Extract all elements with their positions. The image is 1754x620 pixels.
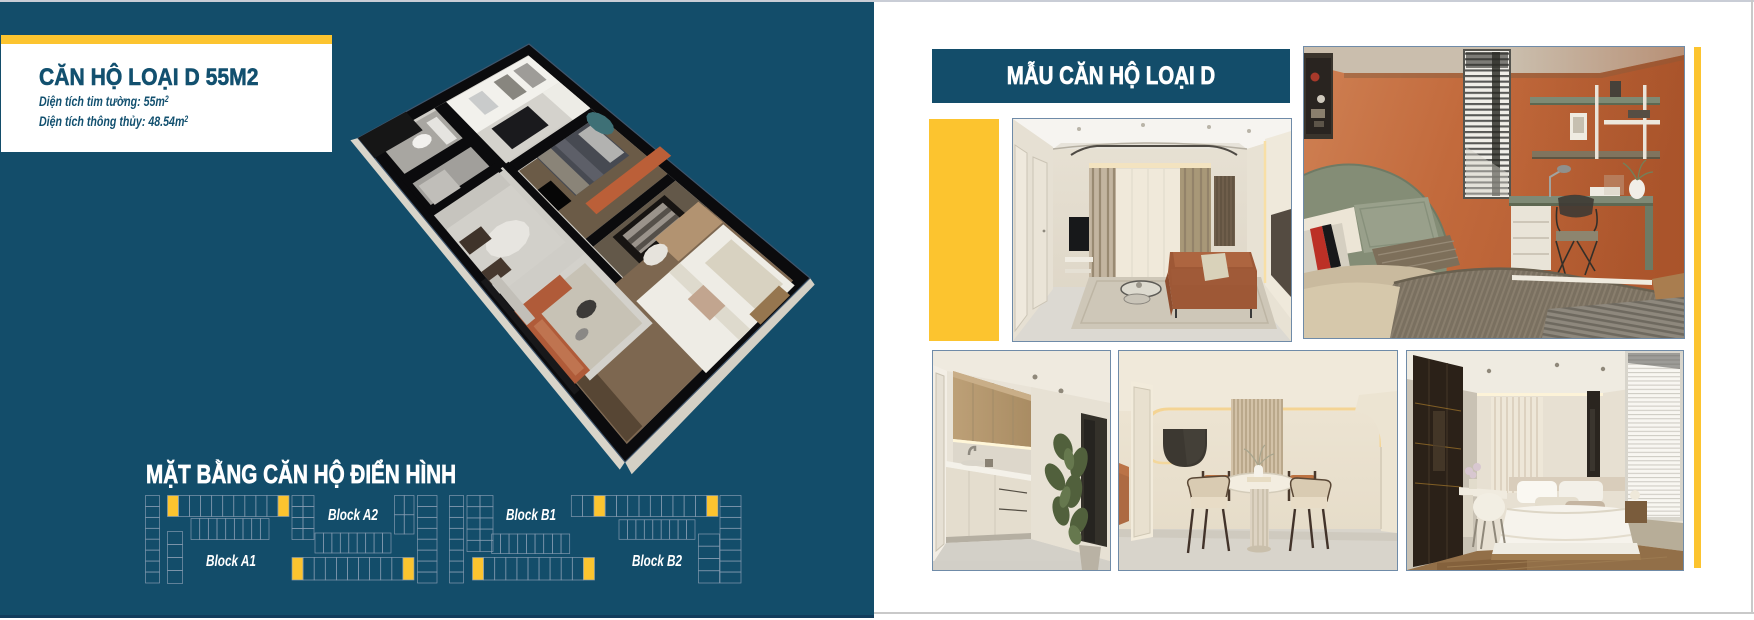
svg-text:Block A1: Block A1: [206, 553, 256, 570]
svg-text:Block B2: Block B2: [632, 553, 682, 570]
svg-text:Block A2: Block A2: [328, 507, 378, 524]
svg-text:Block B1: Block B1: [506, 507, 556, 524]
